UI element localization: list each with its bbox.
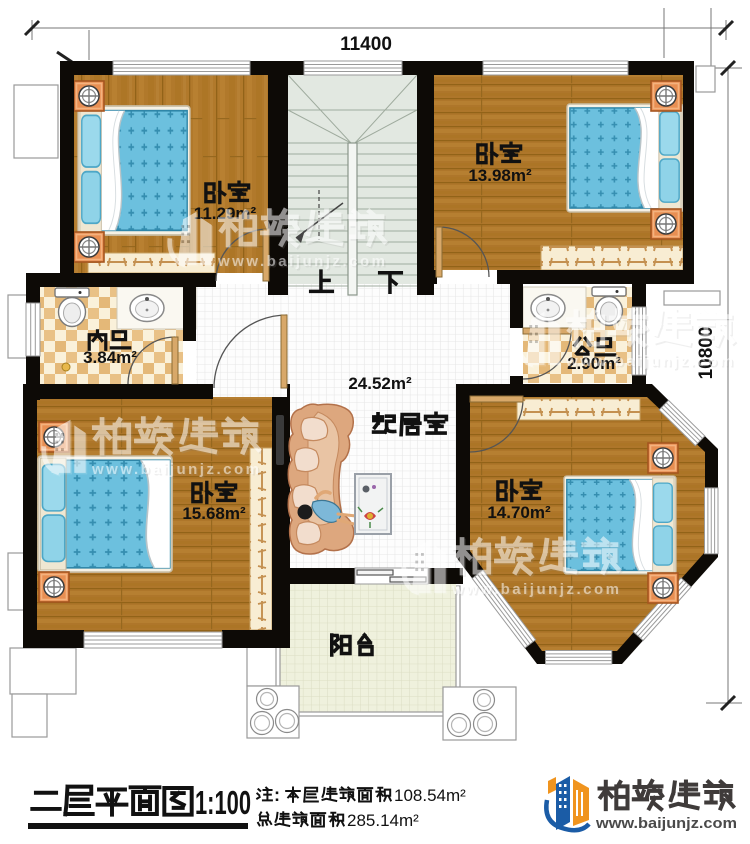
svg-text:www.baijunjz.com: www.baijunjz.com	[217, 253, 387, 270]
svg-text:www.baijunjz.com: www.baijunjz.com	[595, 815, 737, 832]
svg-text:24.52m²: 24.52m²	[348, 374, 412, 393]
svg-text:www.baijunjz.com: www.baijunjz.com	[91, 461, 261, 478]
svg-text:14.70m²: 14.70m²	[487, 503, 551, 522]
svg-text:1:100: 1:100	[195, 784, 251, 821]
svg-text:13.98m²: 13.98m²	[468, 166, 532, 185]
svg-text:www.baijunjz.com: www.baijunjz.com	[451, 581, 621, 598]
svg-text::: :	[274, 785, 280, 805]
svg-text:11400: 11400	[340, 34, 392, 55]
svg-text:www.baijunjz.com: www.baijunjz.com	[565, 353, 735, 370]
svg-text:108.54m²: 108.54m²	[394, 786, 466, 805]
svg-text:3.84m²: 3.84m²	[83, 348, 137, 367]
svg-text:285.14m²: 285.14m²	[347, 811, 419, 830]
svg-text:15.68m²: 15.68m²	[182, 504, 246, 523]
